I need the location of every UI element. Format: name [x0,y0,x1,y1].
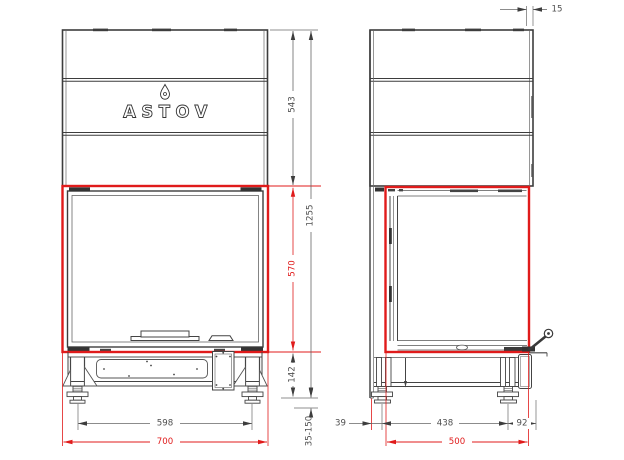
dim-feet-spacing-front: 598 [78,418,252,429]
firebox-top-bar [388,189,527,196]
handle-lever [530,337,546,350]
flame-icon [161,85,170,100]
side-view: 15 [333,5,565,448]
base-frame [63,352,267,391]
firebox-opening-outline-side [386,187,530,352]
dim-overall-depth: 500 [387,437,528,448]
hood-edge-detail [531,164,533,177]
side-leveling-feet [372,387,519,404]
leveling-foot [498,387,519,404]
dim-foot-adjust: 35-150 [305,389,315,446]
firebox-bottom-bar [398,341,529,352]
leveling-foot [242,386,263,403]
brand-logo: ASTOV [123,85,213,122]
dim-overall-width: 700 [64,437,268,448]
locating-pin [404,358,407,388]
brand-text: ASTOV [123,103,213,122]
door-latch-tab [209,336,233,341]
dim-label-feet-spacing-side: 438 [437,419,453,429]
dim-opening-height: 570 [288,188,299,351]
base-junction-plate [213,352,235,391]
firebox-side [375,188,528,352]
dim-label-base-height: 142 [288,366,298,382]
base-side-frame [374,355,532,389]
leveling-foot [67,386,88,403]
dim-hood-height: 543 [288,31,299,185]
door-edge-strip [389,196,398,341]
dim-label-feet-spacing-front: 598 [157,419,173,429]
dim-top-gap: 15 [500,5,565,27]
side-junction-plate [519,355,532,389]
dim-label-back-offset: 39 [335,419,346,429]
hood-side-panel [370,29,534,186]
wall-bracket [375,188,384,192]
dim-front-offset: 92 [508,418,536,429]
back-wall [370,30,374,398]
dim-label-top-gap: 15 [552,5,563,15]
firebox-door [68,187,264,351]
dim-label-foot-adjust: 35-150 [305,416,315,446]
dim-label-opening-height: 570 [288,260,298,276]
dim-label-overall-width: 700 [157,437,173,447]
front-view: ASTOV [63,29,322,448]
dim-back-offset: 39 [333,418,382,429]
door-glass [72,196,259,343]
dim-feet-spacing-side: 438 [382,418,508,429]
hood-edge-detail [531,96,533,118]
dim-total-height: 1255 [306,31,317,397]
dim-label-front-offset: 92 [517,419,528,429]
hood-side-seams [370,79,533,136]
drawing-svg: ASTOV [0,0,624,460]
fireplace-technical-drawing: ASTOV [0,0,624,460]
dim-label-total-height: 1255 [306,205,316,227]
base-access-plate [97,360,208,379]
dim-label-overall-depth: 500 [449,437,465,447]
dim-base-height: 142 [288,354,299,397]
leveling-foot [372,387,393,404]
dim-label-hood-height: 543 [288,96,298,112]
